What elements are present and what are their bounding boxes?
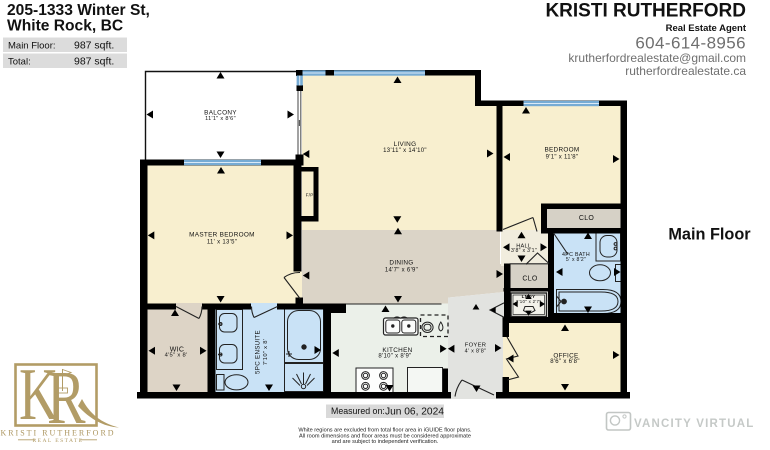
svg-text:and are subject to independent: and are subject to independent verificat… bbox=[332, 439, 439, 445]
svg-text:9'1" x 11'8": 9'1" x 11'8" bbox=[546, 155, 579, 161]
svg-text:CLO: CLO bbox=[579, 215, 595, 222]
svg-text:987 sqft.: 987 sqft. bbox=[74, 40, 114, 52]
svg-text:BEDROOM: BEDROOM bbox=[544, 147, 579, 154]
svg-text:5PC ENSUITE: 5PC ENSUITE bbox=[255, 330, 262, 374]
svg-text:MASTER BEDROOM: MASTER BEDROOM bbox=[189, 232, 255, 239]
svg-text:8'10" x 8'9": 8'10" x 8'9" bbox=[378, 353, 411, 359]
svg-text:Total:: Total: bbox=[8, 57, 31, 68]
svg-text:4'5" x 8': 4'5" x 8' bbox=[165, 353, 188, 359]
svg-text:REAL ESTATE: REAL ESTATE bbox=[33, 438, 84, 444]
svg-text:205-1333 Winter St,: 205-1333 Winter St, bbox=[7, 2, 150, 19]
svg-text:8'6" x 6'8": 8'6" x 6'8" bbox=[550, 359, 580, 365]
svg-text:7'10" x 8': 7'10" x 8' bbox=[263, 339, 269, 365]
svg-text:4' x 8'8": 4' x 8'8" bbox=[465, 348, 487, 354]
svg-text:krutherfordrealestate@gmail.co: krutherfordrealestate@gmail.com bbox=[568, 51, 746, 65]
svg-text:987 sqft.: 987 sqft. bbox=[74, 56, 114, 68]
svg-text:Main Floor:: Main Floor: bbox=[8, 41, 56, 52]
svg-text:11' x 13'5": 11' x 13'5" bbox=[207, 240, 237, 246]
svg-text:F/P: F/P bbox=[306, 193, 314, 198]
svg-text:Jun 06, 2024: Jun 06, 2024 bbox=[385, 406, 444, 417]
svg-text:KRISTI RUTHERFORD: KRISTI RUTHERFORD bbox=[545, 1, 746, 22]
svg-text:14'7" x 6'9": 14'7" x 6'9" bbox=[385, 268, 418, 274]
svg-text:Real Estate Agent: Real Estate Agent bbox=[666, 23, 747, 34]
svg-text:11'1" x 8'6": 11'1" x 8'6" bbox=[205, 116, 236, 122]
svg-text:KRISTI RUTHERFORD: KRISTI RUTHERFORD bbox=[0, 429, 115, 438]
svg-text:5' x 8'2": 5' x 8'2" bbox=[566, 257, 586, 263]
svg-text:DINING: DINING bbox=[389, 260, 413, 267]
svg-text:3'8" x 3'1": 3'8" x 3'1" bbox=[511, 248, 537, 254]
svg-text:VANCITY VIRTUAL: VANCITY VIRTUAL bbox=[634, 418, 754, 430]
svg-text:R: R bbox=[47, 355, 86, 439]
svg-text:604-614-8956: 604-614-8956 bbox=[635, 34, 746, 53]
svg-text:rutherfordrealestate.ca: rutherfordrealestate.ca bbox=[625, 64, 746, 78]
svg-text:2'10" x 2'7": 2'10" x 2'7" bbox=[516, 299, 541, 304]
svg-text:CLO: CLO bbox=[522, 275, 538, 282]
svg-text:Measured on:: Measured on: bbox=[331, 406, 385, 416]
svg-text:Main Floor: Main Floor bbox=[668, 226, 751, 244]
svg-text:13'11" x 14'10": 13'11" x 14'10" bbox=[383, 148, 427, 154]
svg-text:White Rock, BC: White Rock, BC bbox=[7, 18, 123, 35]
